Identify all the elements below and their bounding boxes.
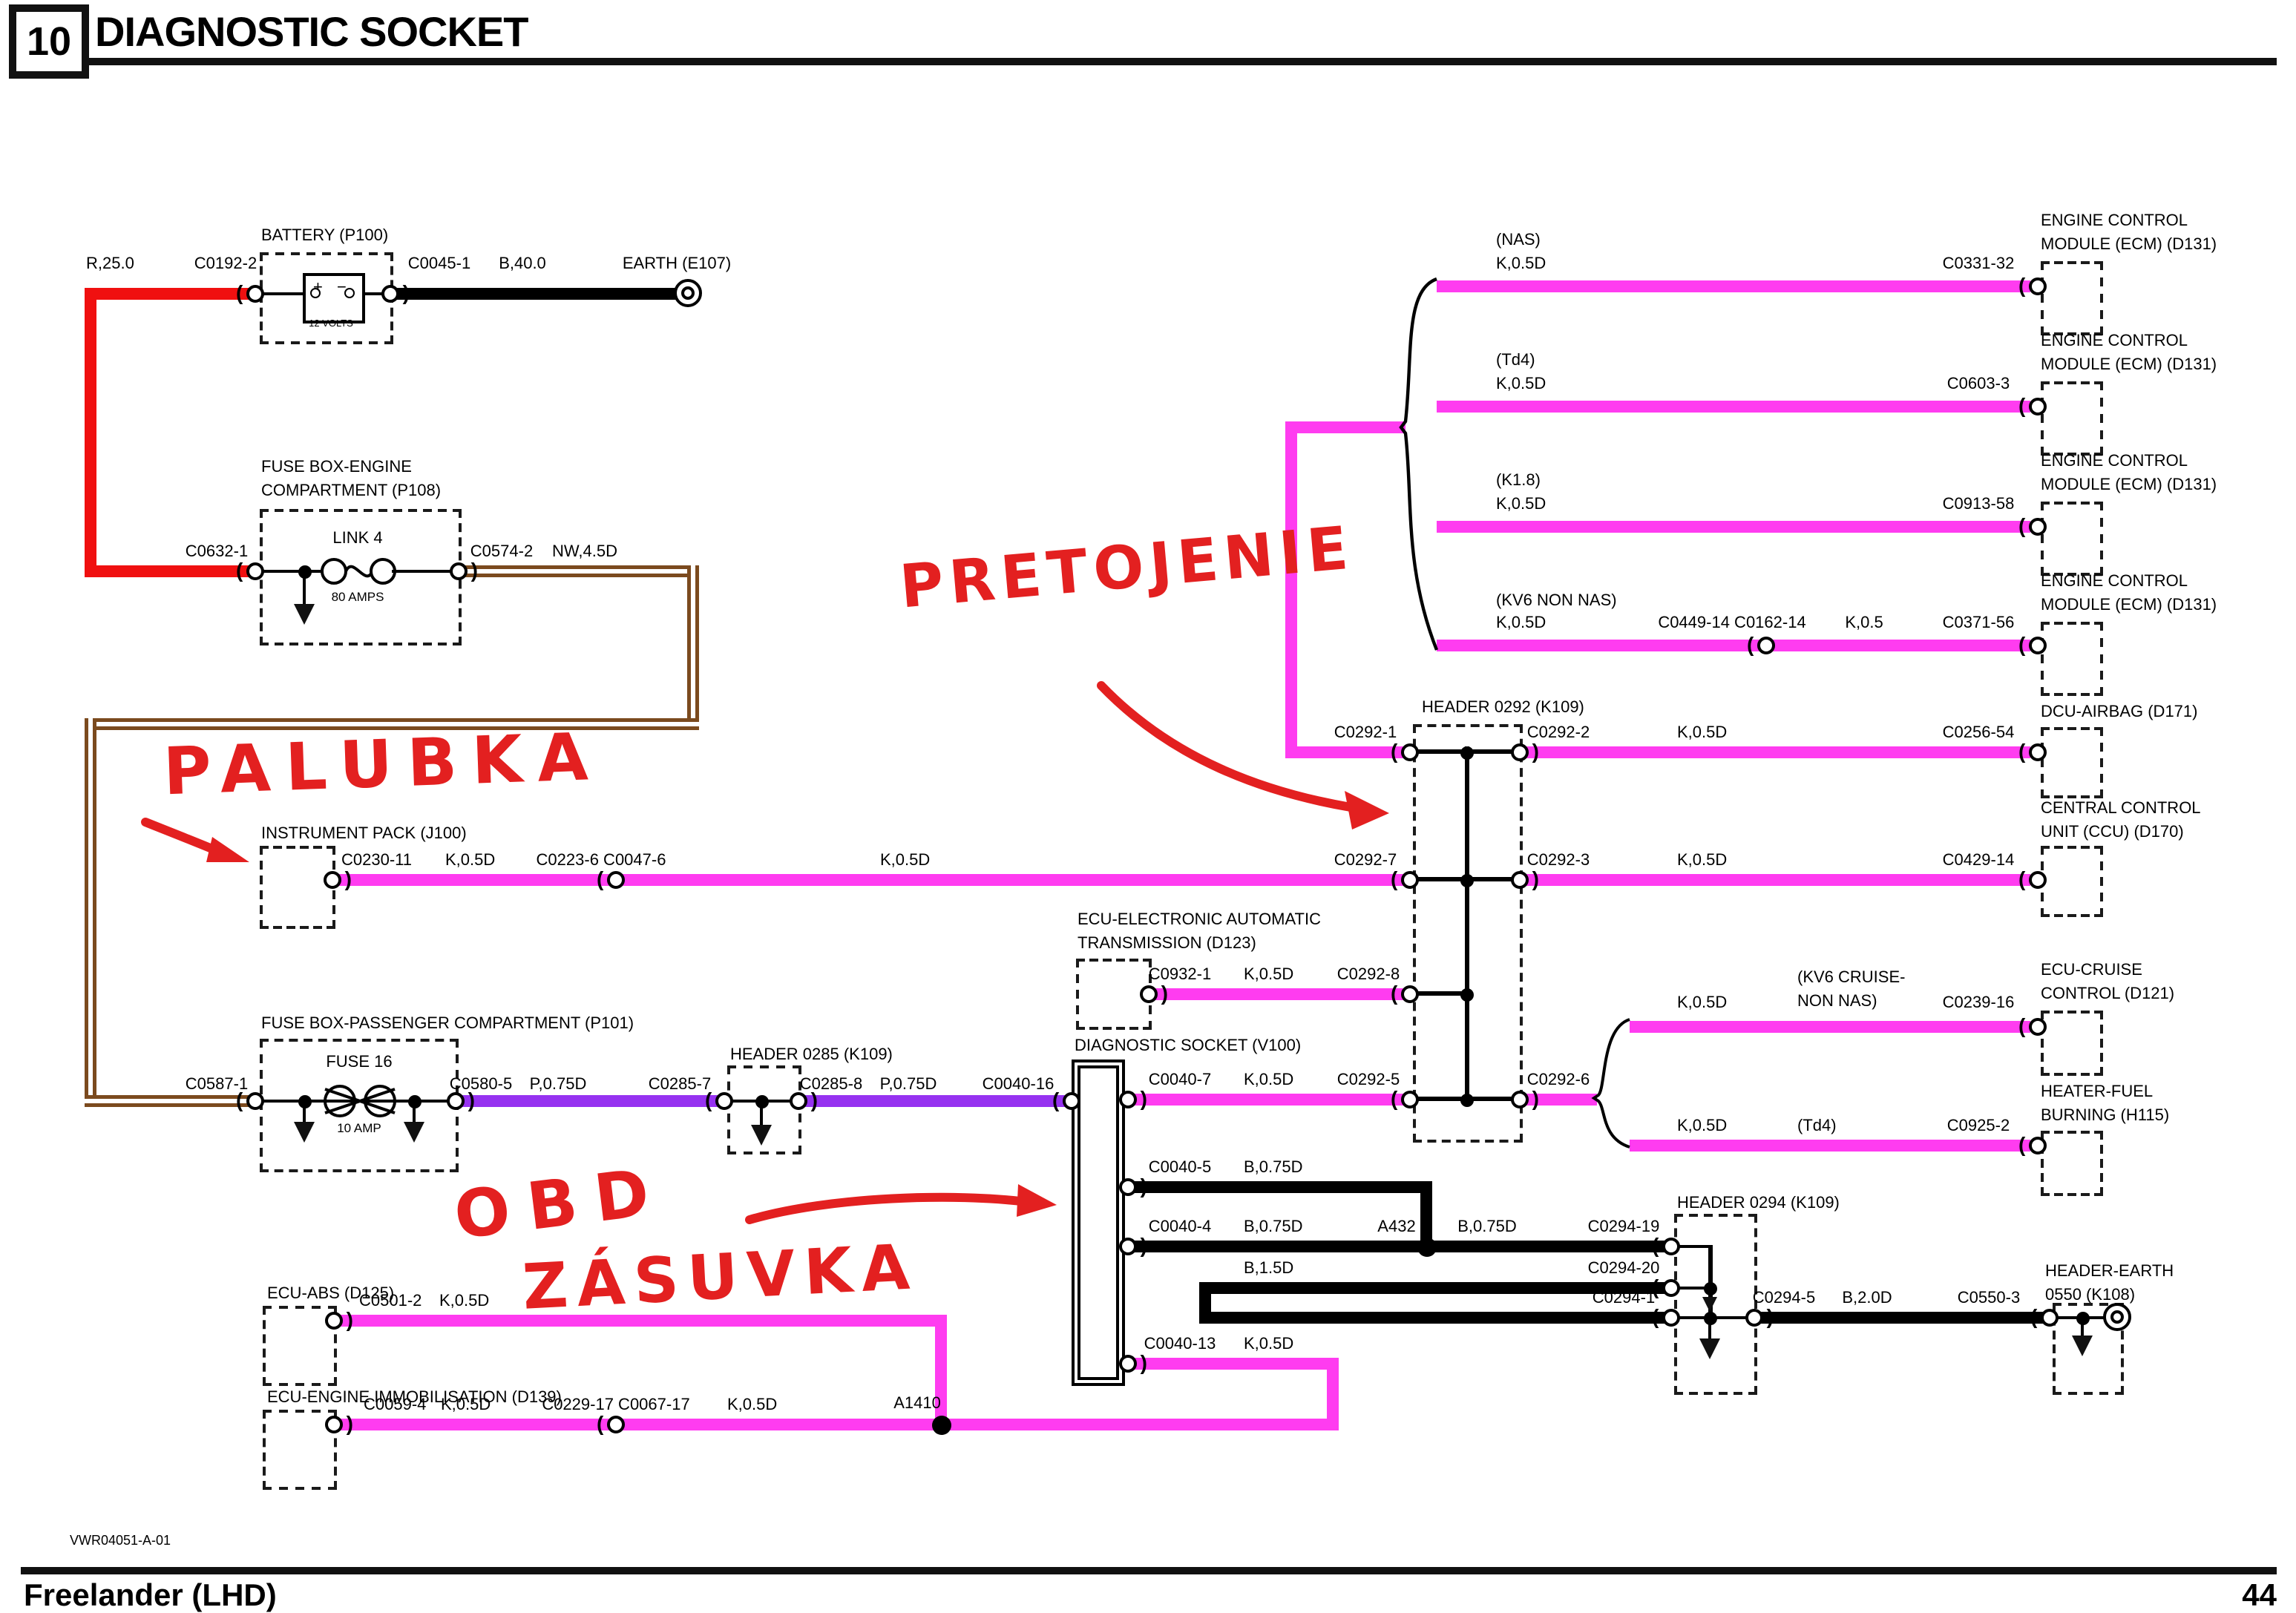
diagnostic-socket-box-inner bbox=[1078, 1065, 1119, 1380]
header0294-label: HEADER 0294 (K109) bbox=[1677, 1195, 1840, 1212]
c0292-8-label: C0292-8 bbox=[1337, 966, 1400, 984]
ecm-td4-name-2: MODULE (ECM) (D131) bbox=[2041, 356, 2217, 374]
header0294-gnd-line bbox=[1708, 1318, 1711, 1338]
wire-k-heater bbox=[1630, 1140, 2030, 1152]
c0040-13-wire-label: K,0.5D bbox=[1244, 1336, 1293, 1353]
ecu-trans-conn bbox=[1140, 985, 1158, 1003]
ecm-k18-name-2: MODULE (ECM) (D131) bbox=[2041, 476, 2217, 494]
c0285-7-label: C0285-7 bbox=[649, 1076, 711, 1094]
wire-k-c0040-13 bbox=[1128, 1358, 1339, 1370]
wire-b-loop-bottom bbox=[1199, 1312, 1674, 1324]
ecm-td4-name-1: ENGINE CONTROL bbox=[2041, 332, 2188, 350]
c0632-1-label: C0632-1 bbox=[186, 543, 248, 561]
c0574-2-label: C0574-2 bbox=[470, 543, 533, 561]
ecm-kv6-conn: C0371-56 bbox=[1943, 614, 2015, 632]
ecu-cruise-box bbox=[2041, 1011, 2103, 1076]
header0292-dot-1 bbox=[1460, 746, 1473, 759]
c0292-7-label: C0292-7 bbox=[1334, 852, 1397, 870]
header-earth-conn bbox=[2041, 1309, 2059, 1327]
ecm-nas-conn-circle bbox=[2029, 277, 2047, 295]
heater-box bbox=[2041, 1131, 2103, 1196]
battery-symbol bbox=[303, 273, 365, 323]
diagnostic-socket-box bbox=[1072, 1060, 1125, 1386]
header0292-conn-c5 bbox=[1401, 1091, 1419, 1108]
header-earth-label-1: HEADER-EARTH bbox=[2045, 1263, 2174, 1281]
header0285-label: HEADER 0285 (K109) bbox=[730, 1046, 893, 1064]
ecm-nas-name-1: ENGINE CONTROL bbox=[2041, 212, 2188, 230]
header0285-conn-out bbox=[790, 1092, 807, 1110]
ecu-cruise-conn bbox=[2029, 1018, 2047, 1036]
c0932-1-label: C0932-1 bbox=[1149, 966, 1211, 984]
socket-conn-4 bbox=[1119, 1238, 1137, 1255]
c0292-2-label: C0292-2 bbox=[1527, 724, 1590, 742]
instrument-label: INSTRUMENT PACK (J100) bbox=[261, 825, 467, 843]
ecm-nas-wire: K,0.5D bbox=[1496, 255, 1546, 273]
wiring-diagram-page: 10 DIAGNOSTIC SOCKET bbox=[0, 0, 2296, 1613]
c0580-5-label: C0580-5 bbox=[450, 1076, 512, 1094]
p075d-label-1: P,0.75D bbox=[530, 1076, 587, 1094]
header0292-conn-c1 bbox=[1401, 743, 1419, 761]
header0294-conn-20 bbox=[1662, 1279, 1680, 1297]
c0040-4-wire-label: B,0.75D bbox=[1244, 1218, 1303, 1236]
fusebox-pass-label: FUSE BOX-PASSENGER COMPARTMENT (P101) bbox=[261, 1015, 634, 1033]
ecm-kv6-conn-circle bbox=[2029, 637, 2047, 654]
immob-wire-label: K,0.5D bbox=[441, 1396, 491, 1414]
ecu-trans-label-2: TRANSMISSION (D123) bbox=[1078, 935, 1256, 953]
battery-lead-left bbox=[261, 292, 306, 295]
ecm-kv6-name-1: ENGINE CONTROL bbox=[2041, 573, 2188, 591]
battery-conn-out-label: C0045-1 bbox=[408, 255, 470, 273]
link4-label: LINK 4 bbox=[332, 530, 382, 548]
wire-k-feeder-vert bbox=[1285, 421, 1297, 758]
header0285-gnd bbox=[751, 1125, 772, 1146]
fusebox-engine-lead-left bbox=[263, 570, 322, 573]
ecm-td4-conn: C0603-3 bbox=[1947, 375, 2010, 393]
a432-splice bbox=[1417, 1237, 1436, 1256]
ecm-td4-variant: (Td4) bbox=[1496, 352, 1535, 369]
c0040-4-wire2-label: B,0.75D bbox=[1457, 1218, 1517, 1236]
drawing-ref: VWR04051-A-01 bbox=[70, 1534, 171, 1549]
wire-b-c0040-5 bbox=[1128, 1181, 1432, 1193]
dcu-label: DCU-AIRBAG (D171) bbox=[2041, 703, 2198, 721]
header-earth-ring bbox=[2103, 1303, 2131, 1331]
instrument-box bbox=[260, 846, 335, 929]
c0294-19-label: C0294-19 bbox=[1588, 1218, 1660, 1236]
ecm-kv6-inline-conn bbox=[1757, 637, 1775, 654]
battery-volts: 12 VOLTS bbox=[309, 319, 353, 329]
battery-wire-out-label: B,40.0 bbox=[499, 255, 546, 273]
section-number: 10 bbox=[27, 19, 71, 65]
ecm-kv6-variant: (KV6 NON NAS) bbox=[1496, 592, 1617, 610]
abs-conn bbox=[325, 1312, 343, 1330]
header0294-conn-19 bbox=[1662, 1238, 1680, 1255]
wire-k-socket7 bbox=[1128, 1094, 1413, 1106]
c0294-1-label: C0294-1 bbox=[1593, 1290, 1655, 1307]
c0230-11-label: C0230-11 bbox=[341, 852, 412, 870]
handwritten-note-palubka: PALUBKA bbox=[162, 720, 604, 811]
header0294-gnd-2 bbox=[1702, 1297, 1717, 1312]
ecm-td4-conn-circle bbox=[2029, 398, 2047, 415]
battery-conn-in bbox=[246, 285, 264, 303]
footer-rule bbox=[21, 1567, 2277, 1574]
header0292-bus bbox=[1465, 746, 1469, 1106]
header-earth-gnd bbox=[2072, 1336, 2093, 1356]
wire-k-dcu bbox=[1523, 746, 2030, 758]
nw45d-label: NW,4.5D bbox=[552, 543, 617, 561]
a1410-splice bbox=[931, 1415, 951, 1434]
dcu-box bbox=[2041, 727, 2103, 798]
fusebox-pass-lead bbox=[263, 1100, 453, 1103]
handwritten-note-obd: OBD bbox=[450, 1154, 671, 1255]
c0550-3-label: C0550-3 bbox=[1958, 1290, 2020, 1307]
ecm-k18-box bbox=[2041, 502, 2103, 576]
fusebox-engine-label-2: COMPARTMENT (P108) bbox=[261, 482, 441, 500]
ecm-k18-wire: K,0.5D bbox=[1496, 496, 1546, 513]
c0925-2-label: C0925-2 bbox=[1947, 1117, 2010, 1135]
wire-k-abs-drop bbox=[935, 1315, 947, 1430]
socket-conn-7 bbox=[1119, 1091, 1137, 1108]
fuse16-amp-label: 10 AMP bbox=[337, 1122, 381, 1136]
section-number-box: 10 bbox=[9, 4, 89, 79]
fusebox-pass-gnd-line-left bbox=[303, 1101, 306, 1122]
instrument-conn bbox=[324, 871, 341, 889]
immob-inline-label: C0229-17 C0067-17 bbox=[542, 1396, 689, 1414]
c0239-16-label: C0239-16 bbox=[1943, 994, 2015, 1012]
header0292-conn-c6 bbox=[1511, 1091, 1529, 1108]
wire-brown-4 bbox=[85, 718, 96, 1107]
wire-k-nas bbox=[1437, 280, 2030, 292]
fusebox-pass-conn-out bbox=[447, 1092, 465, 1110]
wire-k-feeder-top bbox=[1285, 421, 1406, 433]
wire-p-2 bbox=[801, 1095, 1072, 1107]
c0292-3-label: C0292-3 bbox=[1527, 852, 1590, 870]
cruise-wire-label: K,0.5D bbox=[1677, 994, 1727, 1012]
abs-wire-label: K,0.5D bbox=[439, 1292, 489, 1310]
c0040-7-label: C0040-7 bbox=[1149, 1071, 1211, 1089]
fusebox-engine-gnd-line bbox=[303, 571, 306, 604]
annotation-arrowhead-obd bbox=[1017, 1184, 1057, 1217]
immob-wire2-label: K,0.5D bbox=[727, 1396, 777, 1414]
wire-k-cruise bbox=[1630, 1021, 2030, 1033]
annotation-arrow-small bbox=[145, 822, 223, 853]
ecm-k18-name-1: ENGINE CONTROL bbox=[2041, 453, 2188, 470]
wire-brown-2 bbox=[687, 565, 699, 730]
fusebox-engine-conn-in bbox=[246, 562, 264, 580]
socket-label: DIAGNOSTIC SOCKET (V100) bbox=[1075, 1037, 1301, 1055]
earth-label: EARTH (E107) bbox=[623, 255, 731, 273]
wire-k-td4 bbox=[1437, 401, 2030, 413]
header0292-dot-4 bbox=[1460, 1093, 1473, 1106]
b15d-label: B,1.5D bbox=[1244, 1260, 1293, 1278]
header0294-dot-1 bbox=[1703, 1281, 1716, 1295]
c0429-14-label: C0429-14 bbox=[1943, 852, 2015, 870]
instrument-inline-conn bbox=[607, 871, 625, 889]
fusebox-pass-gnd-line-right bbox=[413, 1101, 416, 1122]
page-title: DIAGNOSTIC SOCKET bbox=[95, 9, 528, 56]
cruise-variant-2: NON NAS) bbox=[1797, 993, 1877, 1011]
footer-model: Freelander (LHD) bbox=[24, 1579, 277, 1613]
wire-k-immob bbox=[337, 1419, 1327, 1430]
wire-p-1 bbox=[459, 1095, 727, 1107]
header0294-gnd-1 bbox=[1699, 1338, 1720, 1359]
annotation-arrowhead-small bbox=[206, 837, 249, 862]
ecm-kv6-inline-label: C0449-14 C0162-14 bbox=[1658, 614, 1805, 632]
ecm-td4-box bbox=[2041, 381, 2103, 456]
wire-k-kv6 bbox=[1437, 640, 2030, 651]
ccu-label-1: CENTRAL CONTROL bbox=[2041, 800, 2201, 818]
socket-conn-16 bbox=[1063, 1092, 1080, 1110]
wire-b-earth-out bbox=[1757, 1312, 2053, 1324]
wire-k-ccu bbox=[1523, 874, 2030, 886]
c0292-5-label: C0292-5 bbox=[1337, 1071, 1400, 1089]
header0292-conn-c3 bbox=[1511, 871, 1529, 889]
header0292-conn-c8 bbox=[1401, 985, 1419, 1003]
a1410-label: A1410 bbox=[893, 1395, 941, 1413]
wire-k-instrument bbox=[335, 874, 1413, 886]
c0040-5-wire-label: B,0.75D bbox=[1244, 1159, 1303, 1177]
dcu-conn-circle bbox=[2029, 743, 2047, 761]
header-earth-label-2: 0550 (K108) bbox=[2045, 1287, 2135, 1304]
b20d-label: B,2.0D bbox=[1842, 1290, 1892, 1307]
header0292-dot-2 bbox=[1460, 873, 1473, 887]
branch-brace-c0292-6 bbox=[1594, 1019, 1630, 1147]
ecm-kv6-wire: K,0.5D bbox=[1496, 614, 1546, 632]
wire-red-to-fusebox bbox=[85, 565, 252, 577]
c0040-13-label: C0040-13 bbox=[1144, 1336, 1216, 1353]
c0040-7-wire-label: K,0.5D bbox=[1244, 1071, 1293, 1089]
earth-ring-e107 bbox=[674, 279, 702, 307]
header-rule bbox=[89, 58, 2277, 65]
ecm-k18-conn: C0913-58 bbox=[1943, 496, 2015, 513]
ecm-kv6-box bbox=[2041, 622, 2103, 696]
fusebox-engine-gnd-arrow bbox=[294, 604, 315, 625]
heater-conn bbox=[2029, 1137, 2047, 1154]
branch-brace-ecm bbox=[1401, 279, 1437, 650]
ecm-nas-box bbox=[2041, 261, 2103, 335]
fusebox-pass-gnd-right bbox=[404, 1122, 424, 1143]
instrument-wire2-label: K,0.5D bbox=[880, 852, 930, 870]
p075d-label-2: P,0.75D bbox=[880, 1076, 937, 1094]
wire-k-k18 bbox=[1437, 521, 2030, 533]
wire-black-battery-earth bbox=[395, 288, 677, 300]
wire-red-vertical bbox=[85, 288, 96, 577]
ccu-wire-label: K,0.5D bbox=[1677, 852, 1727, 870]
c0292-6-label: C0292-6 bbox=[1527, 1071, 1590, 1089]
header0292-conn-c2 bbox=[1511, 743, 1529, 761]
socket-conn-13 bbox=[1119, 1355, 1137, 1373]
header0292-conn-c7 bbox=[1401, 871, 1419, 889]
battery-terminal-neg bbox=[344, 288, 355, 298]
battery-conn-out bbox=[381, 285, 399, 303]
c0285-8-label: C0285-8 bbox=[800, 1076, 862, 1094]
ecu-cruise-label-2: CONTROL (D121) bbox=[2041, 985, 2174, 1003]
header0294-conn-5 bbox=[1745, 1309, 1763, 1327]
ecu-cruise-label-1: ECU-CRUISE bbox=[2041, 962, 2142, 979]
battery-label: BATTERY (P100) bbox=[261, 227, 388, 245]
header0292-label: HEADER 0292 (K109) bbox=[1422, 699, 1584, 717]
fusebox-pass-conn-in bbox=[246, 1092, 264, 1110]
header0294-lead-19 bbox=[1677, 1245, 1710, 1248]
c0059-4-label: C0059-4 bbox=[364, 1396, 426, 1414]
battery-wire-in-label: R,25.0 bbox=[86, 255, 134, 273]
ecu-trans-label-1: ECU-ELECTRONIC AUTOMATIC bbox=[1078, 911, 1321, 929]
battery-terminal-pos bbox=[310, 288, 321, 298]
instrument-wire-label: K,0.5D bbox=[445, 852, 495, 870]
ecm-kv6-name-2: MODULE (ECM) (D131) bbox=[2041, 597, 2217, 614]
c0294-5-label: C0294-5 bbox=[1753, 1290, 1815, 1307]
fusebox-engine-label-1: FUSE BOX-ENGINE bbox=[261, 459, 412, 476]
ecm-k18-conn-circle bbox=[2029, 518, 2047, 536]
link4-amps-label: 80 AMPS bbox=[332, 591, 384, 605]
footer-page-number: 44 bbox=[2242, 1579, 2277, 1613]
c0040-16-label: C0040-16 bbox=[983, 1076, 1054, 1094]
wire-brown-1 bbox=[462, 565, 699, 577]
heater-label-2: BURNING (H115) bbox=[2041, 1107, 2169, 1125]
immob-conn bbox=[325, 1416, 343, 1433]
cruise-variant-1: (KV6 CRUISE- bbox=[1797, 969, 1906, 987]
socket-conn-5 bbox=[1119, 1178, 1137, 1196]
header0285-gnd-line bbox=[760, 1101, 763, 1125]
ccu-label-2: UNIT (CCU) (D170) bbox=[2041, 824, 2184, 841]
wire-k-trans bbox=[1149, 988, 1413, 1000]
wire-brown-5 bbox=[85, 1095, 252, 1107]
c0294-20-label: C0294-20 bbox=[1588, 1260, 1660, 1278]
ecm-kv6-wire2: K,0.5 bbox=[1845, 614, 1883, 632]
header0292-dot-3 bbox=[1460, 988, 1473, 1001]
fusebox-pass-gnd-left bbox=[294, 1122, 315, 1143]
annotation-arrow-obd bbox=[750, 1198, 1027, 1220]
dcu-wire-label: K,0.5D bbox=[1677, 724, 1727, 742]
ecm-k18-variant: (K1.8) bbox=[1496, 472, 1541, 490]
wire-b-c0040-4 bbox=[1128, 1241, 1674, 1252]
header0285-conn-in bbox=[715, 1092, 733, 1110]
ccu-conn-circle bbox=[2029, 871, 2047, 889]
heater-variant: (Td4) bbox=[1797, 1117, 1837, 1135]
ccu-box bbox=[2041, 846, 2103, 917]
fusebox-engine-conn-out bbox=[450, 562, 468, 580]
annotation-arrowhead-big bbox=[1345, 791, 1389, 830]
header-earth-gnd-line bbox=[2081, 1318, 2084, 1336]
ecm-nas-variant: (NAS) bbox=[1496, 231, 1541, 249]
fusebox-engine-lead-right bbox=[392, 570, 453, 573]
ecu-trans-wire-label: K,0.5D bbox=[1244, 966, 1293, 984]
c0256-54-label: C0256-54 bbox=[1943, 724, 2015, 742]
header0294-conn-1 bbox=[1662, 1309, 1680, 1327]
heater-wire-label: K,0.5D bbox=[1677, 1117, 1727, 1135]
immob-inline-conn bbox=[607, 1416, 625, 1433]
wire-k-c0040-13-drop bbox=[1327, 1358, 1339, 1430]
fuse16-label: FUSE 16 bbox=[326, 1054, 392, 1071]
battery-conn-in-label: C0192-2 bbox=[194, 255, 257, 273]
ecm-nas-conn: C0331-32 bbox=[1943, 255, 2015, 273]
handwritten-note-zasuvka: ZÁSUVKA bbox=[521, 1230, 920, 1324]
ecm-td4-wire: K,0.5D bbox=[1496, 375, 1546, 393]
c0501-2-label: C0501-2 bbox=[359, 1292, 422, 1310]
c0587-1-label: C0587-1 bbox=[186, 1076, 248, 1094]
heater-label-1: HEATER-FUEL bbox=[2041, 1083, 2153, 1101]
a432-label: A432 bbox=[1377, 1218, 1415, 1236]
c0040-4-label: C0040-4 bbox=[1149, 1218, 1211, 1236]
c0040-5-label: C0040-5 bbox=[1149, 1159, 1211, 1177]
ecm-nas-name-2: MODULE (ECM) (D131) bbox=[2041, 236, 2217, 254]
c0292-1-label: C0292-1 bbox=[1334, 724, 1397, 742]
wire-red-battery bbox=[95, 288, 252, 300]
